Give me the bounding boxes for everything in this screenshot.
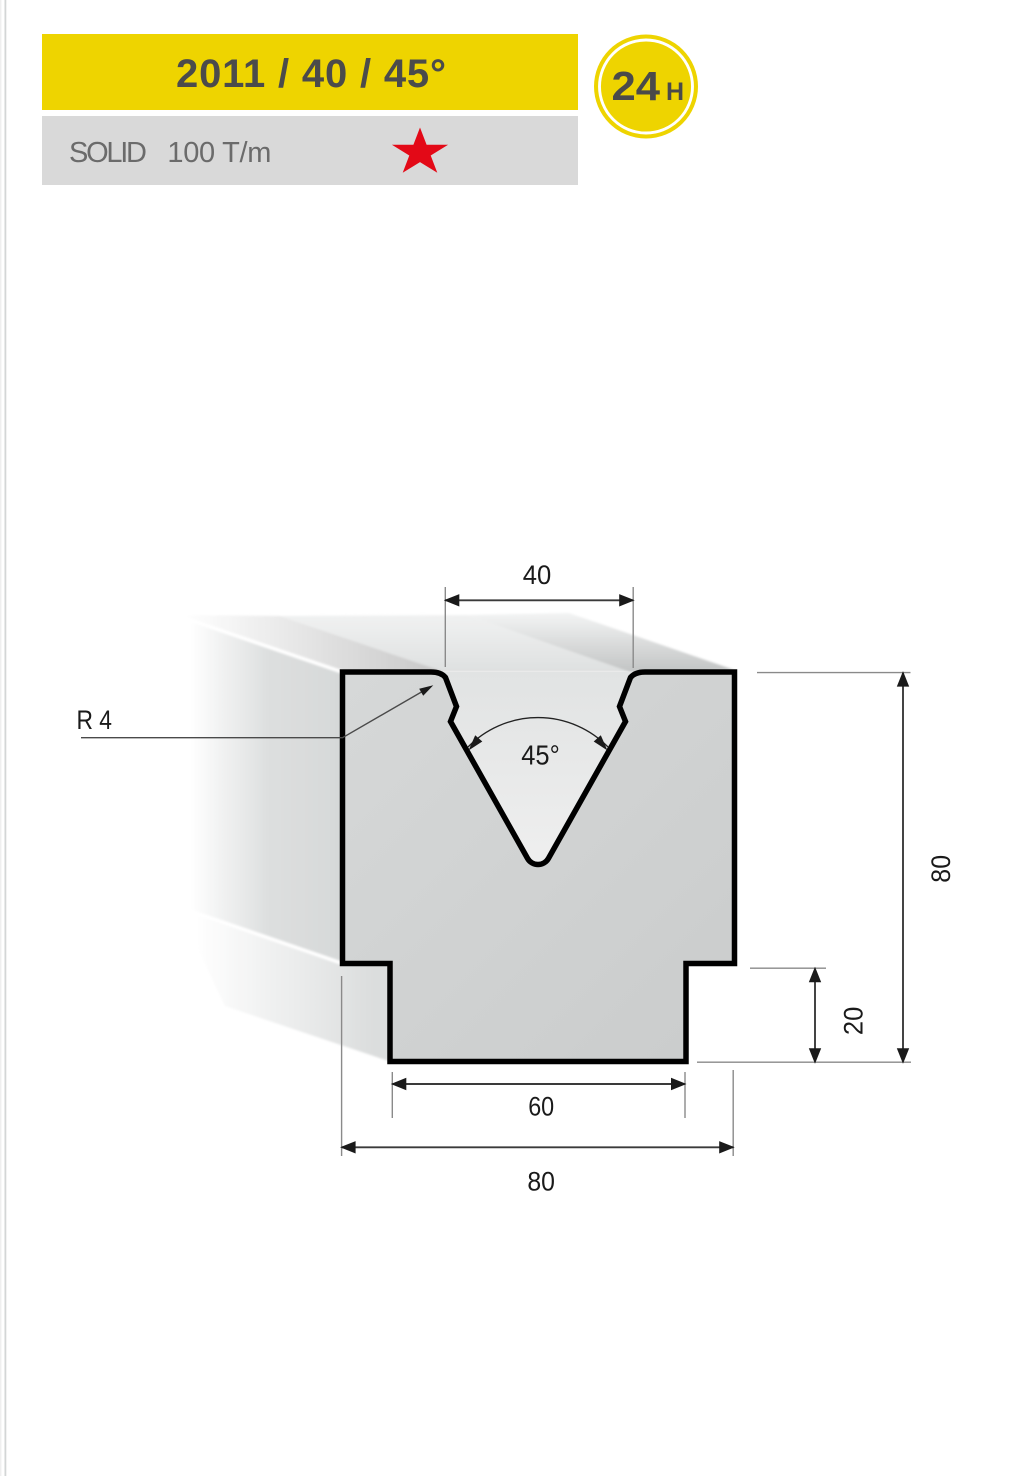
svg-text:100 T/m: 100 T/m: [167, 137, 271, 169]
svg-text:H: H: [666, 78, 684, 106]
svg-text:60: 60: [528, 1091, 554, 1121]
svg-text:24: 24: [612, 63, 661, 109]
svg-text:2011 / 40 / 45°: 2011 / 40 / 45°: [176, 52, 446, 96]
svg-text:20: 20: [839, 1007, 869, 1035]
svg-text:80: 80: [527, 1167, 555, 1197]
svg-text:R 4: R 4: [77, 705, 113, 735]
svg-text:SOLID: SOLID: [69, 137, 147, 169]
svg-text:80: 80: [926, 855, 956, 883]
svg-text:40: 40: [523, 560, 552, 590]
svg-text:45°: 45°: [521, 740, 560, 771]
